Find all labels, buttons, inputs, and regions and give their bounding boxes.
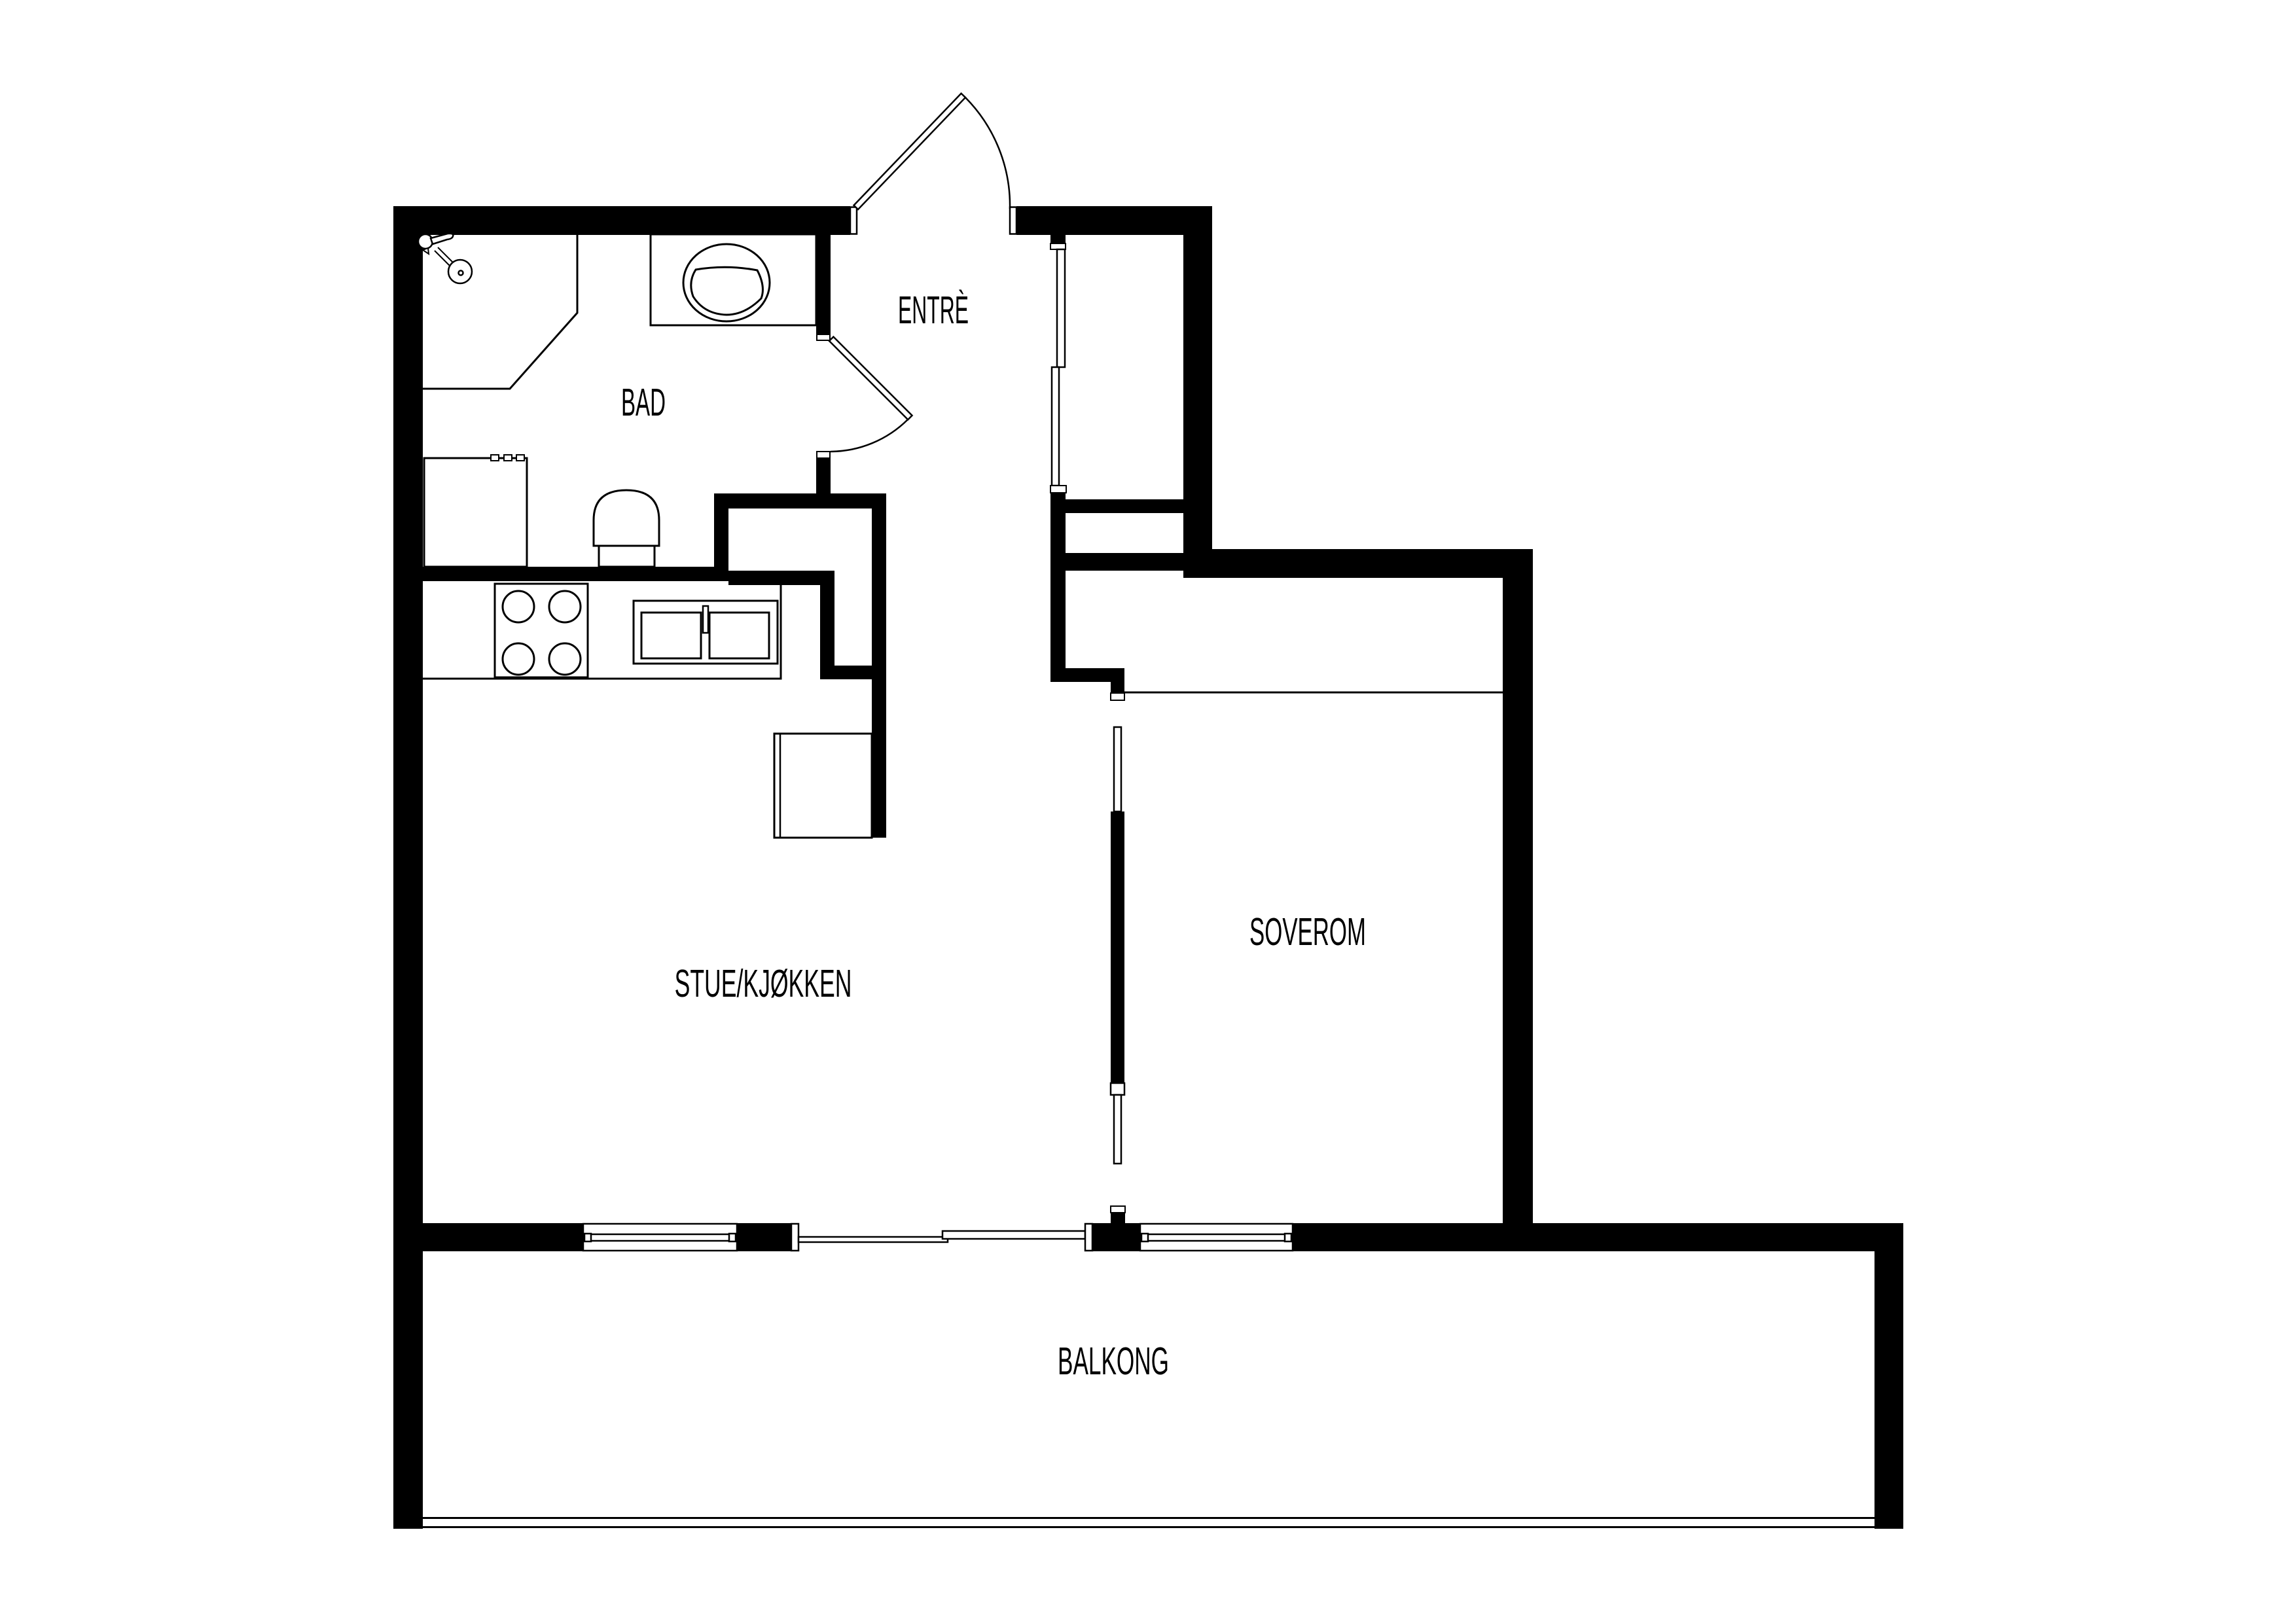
svg-text:BAD: BAD <box>621 382 666 424</box>
svg-text:STUE/KJØKKEN: STUE/KJØKKEN <box>675 963 852 1005</box>
svg-text:SOVEROM: SOVEROM <box>1249 911 1366 954</box>
svg-text:BALKONG: BALKONG <box>1058 1340 1169 1383</box>
svg-text:ENTRÈ: ENTRÈ <box>898 289 969 332</box>
